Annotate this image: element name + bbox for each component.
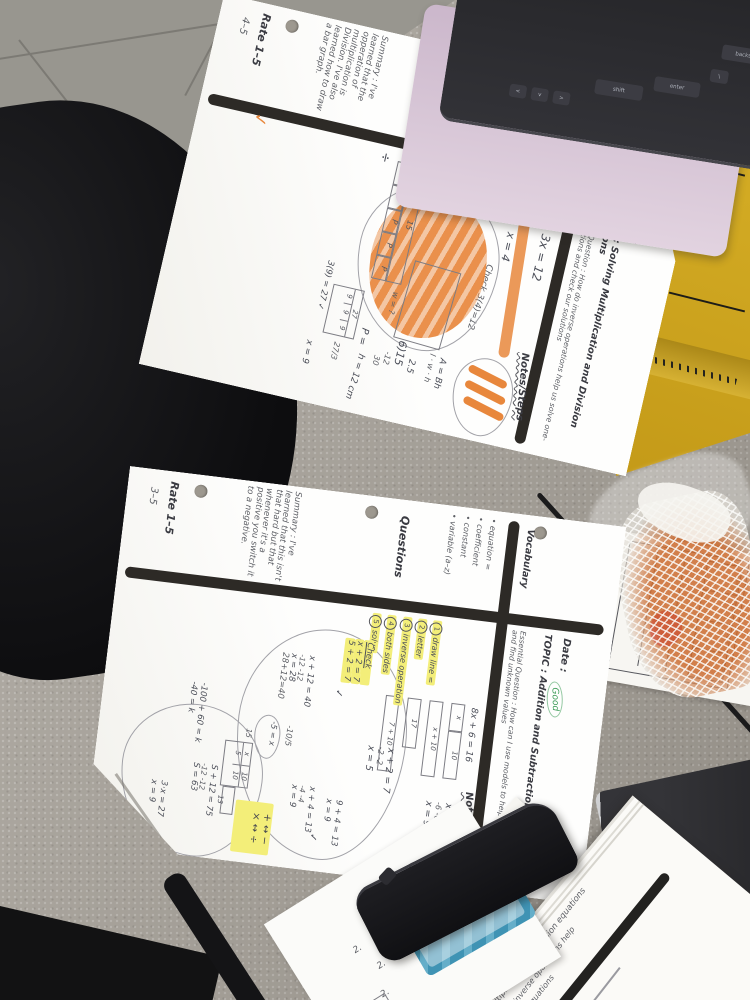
tape-cell: 10 (442, 731, 462, 780)
step-number: 2 (414, 620, 428, 634)
folder-line (669, 292, 745, 312)
vocabulary-label: Vocabulary (517, 529, 535, 589)
hole-punch (284, 18, 300, 34)
tape-cell: x + 10 (420, 700, 443, 777)
math-note: S + 12 = 75 -12 -12 S = 63 (185, 762, 219, 817)
hole-punch (364, 505, 378, 519)
pencil-checkmark: ✓ (306, 832, 318, 842)
keyboard-key-arrow-right: > (552, 90, 571, 105)
rate-value: 3–5 (146, 486, 159, 505)
keyboard-key-shift: shift (594, 79, 644, 101)
check-highlight-block: Check x + 2 = 7 5 + 2 = 7 (341, 638, 375, 686)
questions-label: Questions (391, 515, 411, 578)
math-note: 27/3 (328, 341, 341, 361)
pencil-checkmark: ✓ (332, 688, 344, 698)
math-note: x + 4 = 13 -4 -4 x = 9 (283, 784, 316, 833)
pencil-circle-outline (444, 352, 520, 441)
rate-label: Rate 1–5 (162, 481, 181, 535)
step-text: draw line = (426, 637, 441, 684)
math-note: -10/5 (282, 725, 293, 747)
step-text: both sides (381, 631, 395, 673)
math-line: 13 (216, 794, 225, 804)
ratio-table: x 10 5 10 (220, 740, 253, 789)
math-note: x = 9 (299, 339, 314, 365)
worksheet-square-sketch (344, 993, 410, 1000)
keyboard-key-backspace: backspace (721, 44, 750, 68)
step-text: letter (414, 635, 426, 658)
math-note: 15 (243, 728, 252, 738)
keyboard-key-arrow-left: < (509, 83, 528, 98)
step-number: 1 (429, 622, 443, 636)
margin-marker-line (124, 566, 604, 636)
step-number: 3 (399, 618, 413, 632)
step-number: 5 (368, 614, 382, 628)
keyboard-key-enter: enter (653, 76, 701, 98)
worksheet-mark: 2. (375, 959, 388, 972)
hole-punch (194, 484, 208, 498)
rate-label: Rate 1–5 (249, 12, 273, 67)
math-note: h = 12 cm (343, 352, 366, 400)
math-note: -12 (380, 351, 392, 366)
math-note: -5 = x (266, 721, 278, 746)
summary-text: Summary : I've learned that the opperati… (303, 22, 389, 129)
vocabulary-list: • equation = • coefficient • constant • … (440, 513, 500, 580)
division-sign: ÷ (376, 150, 393, 164)
good-stamp: Good (546, 681, 563, 717)
math-note: x + 2 = 7 -2 -2 x = 5 (360, 745, 396, 794)
math-note: 30 (370, 354, 381, 366)
photo-scene: AVID Thousands Hundreds Tens Ones Date :… (0, 0, 750, 1000)
summary-text: Summary : I've learned that this isn't t… (234, 485, 302, 585)
step-number: 4 (383, 616, 397, 630)
table-cell: 10 (239, 765, 250, 787)
inverse-operations-box: + ↔ − × ↔ ÷ (230, 799, 274, 855)
math-note: 2.5 (404, 358, 417, 374)
math-note: 3·x = 27 x = 9 (145, 779, 168, 818)
keyboard-key-arrow-down: v (530, 87, 549, 102)
math-note: x + 12 = 40 -12 -12 x = 28 28+12=40 (273, 652, 316, 708)
orange-checkmark: ✓ (249, 113, 268, 128)
keyboard-key-backslash: \ (709, 69, 729, 85)
orange-highlighter-stroke (498, 207, 533, 359)
table-cell: x (241, 743, 252, 766)
worksheet-mark: 2. (351, 943, 364, 956)
date-label: Date : (557, 638, 572, 673)
math-note: P = (356, 327, 371, 347)
tape-cell: x (448, 703, 465, 732)
math-note: 8x + 6 = 16 (462, 707, 479, 763)
rate-value: 4–5 (236, 16, 251, 36)
bar-model-total-label: 15 (404, 219, 415, 231)
tape-row: x 10 (442, 703, 466, 784)
